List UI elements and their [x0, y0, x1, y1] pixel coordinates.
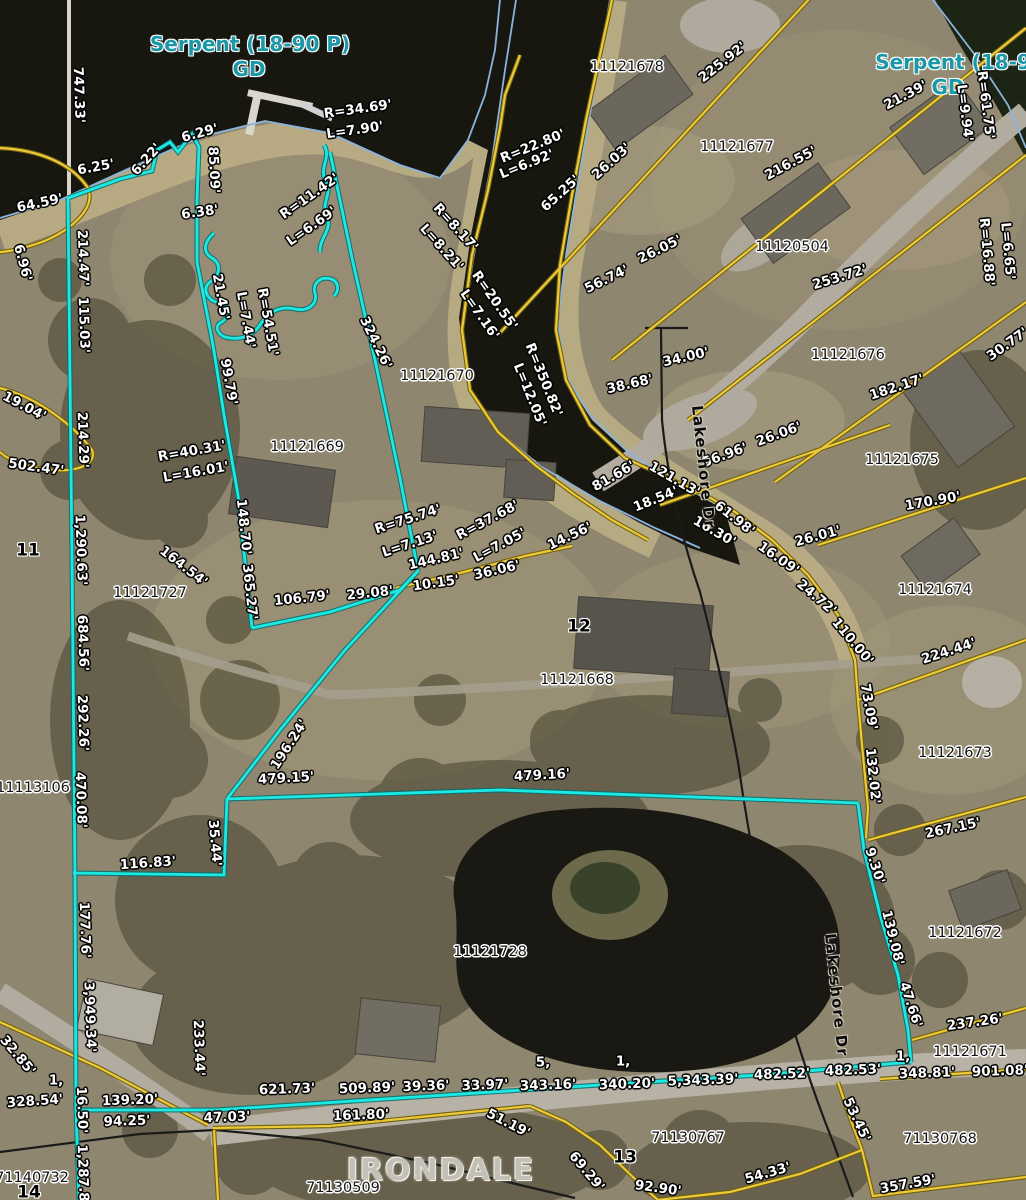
aerial-imagery-layer — [0, 0, 1026, 1200]
parcel-map-viewport[interactable]: Serpent (18-90 P)GDSerpent (18-90GD747.3… — [0, 0, 1026, 1200]
